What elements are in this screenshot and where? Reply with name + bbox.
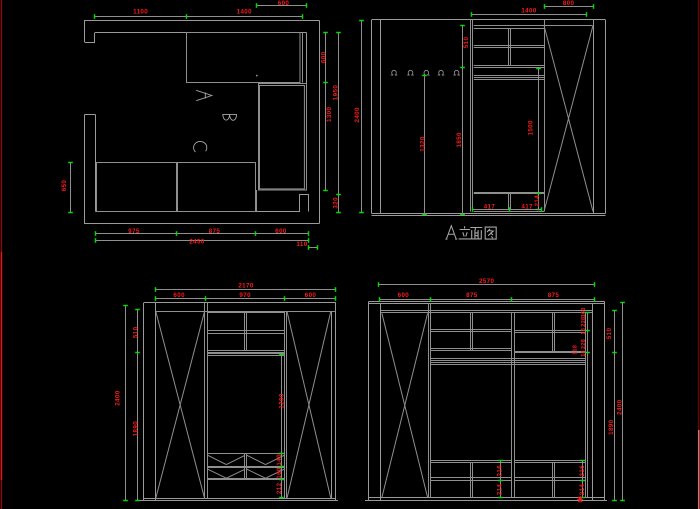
svg-text:163: 163 bbox=[581, 307, 587, 317]
svg-text:875: 875 bbox=[466, 292, 478, 299]
svg-text:228: 228 bbox=[581, 317, 587, 327]
svg-text:875: 875 bbox=[209, 228, 221, 235]
svg-text:160: 160 bbox=[276, 467, 283, 479]
svg-text:970: 970 bbox=[239, 292, 251, 299]
svg-text:510: 510 bbox=[463, 36, 470, 48]
svg-text:1100: 1100 bbox=[133, 9, 148, 16]
svg-text:1500: 1500 bbox=[527, 120, 534, 136]
svg-text:1890: 1890 bbox=[132, 421, 139, 437]
svg-text:600: 600 bbox=[278, 0, 290, 7]
svg-text:2570: 2570 bbox=[479, 278, 495, 285]
svg-text:18: 18 bbox=[581, 350, 587, 357]
svg-text:2400: 2400 bbox=[354, 107, 361, 123]
svg-text:2170: 2170 bbox=[238, 282, 254, 289]
svg-text:216: 216 bbox=[496, 465, 503, 477]
svg-text:2450: 2450 bbox=[189, 239, 205, 246]
svg-text:320: 320 bbox=[333, 197, 340, 209]
svg-text:214: 214 bbox=[579, 484, 586, 496]
svg-text:216: 216 bbox=[579, 465, 586, 477]
svg-text:214: 214 bbox=[534, 195, 541, 207]
svg-text:110: 110 bbox=[296, 241, 307, 248]
svg-text:800: 800 bbox=[563, 0, 575, 7]
svg-text:875: 875 bbox=[548, 292, 560, 299]
svg-text:214: 214 bbox=[496, 484, 503, 496]
svg-text:212: 212 bbox=[276, 482, 283, 494]
svg-text:600: 600 bbox=[275, 228, 287, 235]
svg-text:417: 417 bbox=[521, 203, 533, 210]
svg-text:1300: 1300 bbox=[326, 106, 333, 122]
svg-text:510: 510 bbox=[132, 326, 139, 338]
svg-text:1320: 1320 bbox=[420, 136, 427, 152]
svg-text:2400: 2400 bbox=[617, 399, 624, 415]
svg-text:600: 600 bbox=[173, 292, 185, 299]
svg-text:600: 600 bbox=[321, 51, 328, 63]
svg-text:600: 600 bbox=[305, 292, 317, 299]
svg-text:650: 650 bbox=[61, 180, 68, 192]
svg-text:1890: 1890 bbox=[608, 419, 615, 435]
svg-text:600: 600 bbox=[398, 292, 410, 299]
svg-text:1400: 1400 bbox=[237, 9, 253, 16]
svg-text:2400: 2400 bbox=[114, 390, 121, 406]
svg-text:1950: 1950 bbox=[333, 85, 340, 101]
svg-text:417: 417 bbox=[484, 203, 496, 210]
svg-text:1200: 1200 bbox=[278, 393, 285, 409]
svg-text:1400: 1400 bbox=[521, 8, 537, 15]
svg-text:140: 140 bbox=[276, 454, 283, 466]
svg-text:118: 118 bbox=[573, 345, 579, 355]
svg-text:18: 18 bbox=[581, 328, 587, 335]
svg-text:510: 510 bbox=[606, 327, 613, 339]
svg-text:975: 975 bbox=[128, 228, 140, 235]
svg-text:1850: 1850 bbox=[456, 132, 463, 148]
svg-text:228: 228 bbox=[581, 339, 587, 349]
